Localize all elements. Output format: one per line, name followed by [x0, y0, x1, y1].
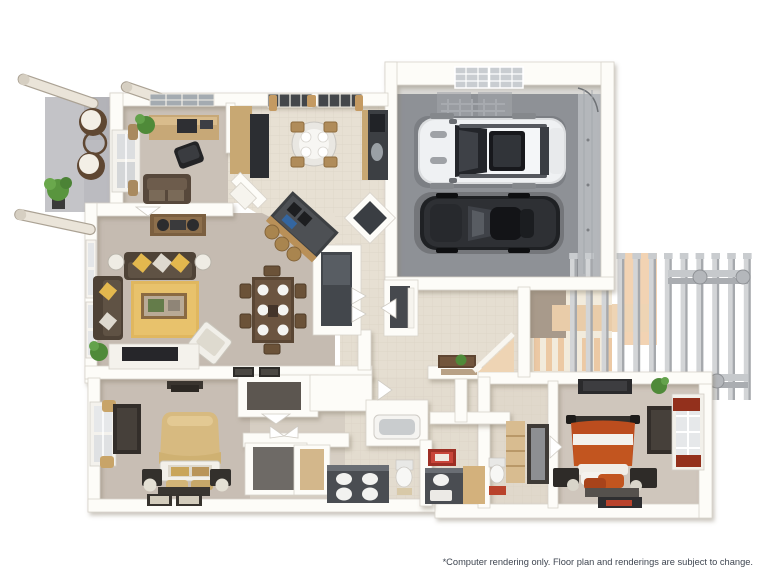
svg-text:*Computer rendering only. Floo: *Computer rendering only. Floor plan and… — [443, 557, 753, 567]
